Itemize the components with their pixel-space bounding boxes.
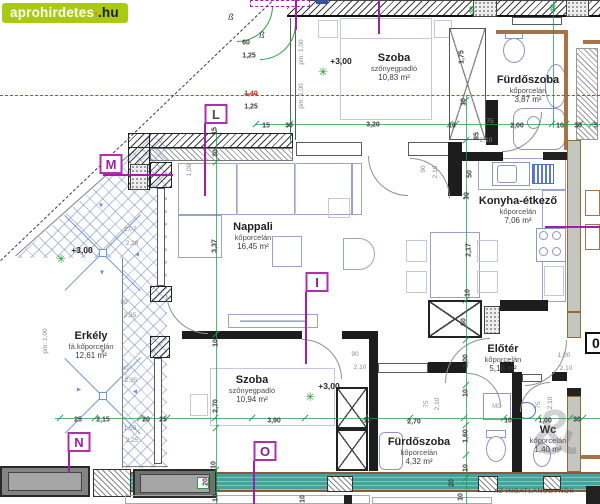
room-floor: szőnyegpadló xyxy=(229,387,275,396)
stub xyxy=(316,0,328,4)
fixture xyxy=(503,38,525,63)
wall-dark xyxy=(512,372,522,472)
furniture xyxy=(352,163,362,215)
room-label: Előtérkőporcelán5,18 m² xyxy=(485,343,522,373)
section-line xyxy=(545,226,600,228)
dim-label: 15 xyxy=(212,127,219,135)
fixture xyxy=(539,231,548,240)
room-area: 10,83 m² xyxy=(371,73,417,82)
room-area: 16,45 m² xyxy=(233,242,273,251)
dim-label: 30 xyxy=(551,4,558,12)
dim-label: 10 xyxy=(213,339,220,347)
furniture-faint xyxy=(585,224,600,250)
site-logo-tld: .hu xyxy=(98,5,119,20)
room-floor: kőporcelán xyxy=(479,208,557,217)
dim-label: 60 xyxy=(461,318,468,326)
dim-label: 10 xyxy=(464,192,471,200)
dim-label: 1,00 xyxy=(463,354,470,368)
room-label: Erkélyfá.kőporcelán12,61 m² xyxy=(68,330,113,360)
level-marker-label: +3,00 xyxy=(330,56,352,66)
dim-label: 30 xyxy=(470,6,477,14)
dim-label: 10 xyxy=(211,461,218,469)
furniture-faint xyxy=(585,190,600,216)
wall-dark xyxy=(552,372,567,381)
slope-arrow-icon: ◄ xyxy=(132,389,139,396)
dim-label: 10 xyxy=(463,464,470,472)
room-area: 12,61 m² xyxy=(68,351,113,360)
dim-label: 30 xyxy=(285,123,293,130)
beta-label: ß xyxy=(228,12,234,22)
hatch-light xyxy=(150,148,293,161)
wall-white xyxy=(154,358,162,464)
slope-arrow-icon: ► xyxy=(76,387,83,394)
furniture xyxy=(430,232,480,298)
section-line xyxy=(68,452,70,473)
dim-label: 2,17 xyxy=(466,243,473,257)
door-number-tag: 0 xyxy=(585,332,600,354)
furniture-faint xyxy=(125,495,370,504)
fixture xyxy=(486,436,506,462)
dim-label: 25 xyxy=(74,417,82,424)
room-name: Szoba xyxy=(371,52,417,65)
dim-label: 20 xyxy=(449,479,456,487)
level-marker-star-icon: ✳ xyxy=(56,252,66,266)
section-line xyxy=(103,174,173,176)
legend-dash-box xyxy=(250,0,310,7)
door-arc xyxy=(302,339,342,379)
room-area: 7,06 m² xyxy=(479,216,557,225)
room-area: 3,87 m² xyxy=(497,95,559,104)
wall-gray xyxy=(567,312,581,338)
furniture-faint xyxy=(328,198,350,218)
fixture xyxy=(539,247,548,256)
wall-white xyxy=(408,142,450,156)
dim-label: pm: 1,00 xyxy=(43,328,50,353)
level-marker-star-icon: ✳ xyxy=(305,390,315,404)
section-marker-o: O xyxy=(254,441,277,461)
furniture-faint xyxy=(406,271,427,293)
room-name: Nappali xyxy=(233,221,273,234)
stipple-block xyxy=(130,164,148,190)
dim-label: 10 xyxy=(300,495,307,503)
dim-label: 10 xyxy=(465,289,472,297)
dim-line-green xyxy=(255,124,600,125)
dim-label: 10 xyxy=(504,418,512,425)
watermark-symbol: & xyxy=(532,395,578,469)
dim-label: 80 xyxy=(121,366,128,373)
fixture xyxy=(497,165,517,183)
furniture-faint xyxy=(294,163,296,215)
dim-label: 3,20 xyxy=(366,122,380,129)
dim-label: 2,28 xyxy=(126,241,139,248)
furniture-faint xyxy=(240,320,306,322)
dim-label: 1,00 xyxy=(558,353,571,360)
wall-dark xyxy=(448,152,503,161)
furniture-faint xyxy=(372,497,492,504)
closet xyxy=(428,300,482,338)
room-floor: szőnyegpadló xyxy=(371,65,417,74)
door-arc xyxy=(410,158,450,198)
fixture xyxy=(552,231,561,240)
room-label: Nappalikőporcelán16,45 m² xyxy=(233,221,273,251)
dim-label: 10 xyxy=(461,98,468,106)
section-marker-m: M xyxy=(100,154,123,174)
dim-label: 1,50 xyxy=(124,426,137,433)
beta-label: ß xyxy=(259,30,265,40)
section-line xyxy=(378,0,380,34)
dim-label: 60 xyxy=(242,40,250,47)
wall-dark xyxy=(448,142,462,196)
dim-label: 20 xyxy=(142,417,150,424)
dim-label: 2,10 xyxy=(435,398,442,411)
room-area: 4,32 m² xyxy=(388,457,450,466)
dim-label: pm: 1,00 xyxy=(299,39,306,64)
furniture-faint xyxy=(544,266,564,296)
dim-label: 10 xyxy=(363,418,371,425)
dim-label: 2,10 xyxy=(354,365,367,372)
room-label: Fürdőszobakőporcelán3,87 m² xyxy=(497,74,559,104)
dim-label: 2,10 xyxy=(480,138,493,145)
edge-line xyxy=(122,258,123,468)
dim-label: 50 xyxy=(467,170,474,178)
dim-label: 1,60 xyxy=(463,429,470,443)
stub xyxy=(543,152,567,160)
dim-label: 90 xyxy=(351,352,358,359)
dim-label: 5 xyxy=(594,123,598,130)
room-label: Konyha-étkezőkőporcelán7,06 m² xyxy=(479,195,557,225)
dim-label: 1,75 xyxy=(459,50,466,64)
dim-label: 20 xyxy=(203,478,210,486)
door-arc xyxy=(467,373,501,407)
wall-white xyxy=(512,17,562,25)
dim-label: 2,10 xyxy=(433,166,440,179)
dim-label: 10 xyxy=(448,123,456,130)
site-logo-name: aprohirdetes xyxy=(10,5,94,20)
furniture-faint xyxy=(236,163,238,215)
dim-label: 15 xyxy=(262,123,270,130)
sink-drainer xyxy=(532,164,554,184)
planter-inner xyxy=(8,472,82,491)
band-insert xyxy=(93,469,131,497)
room-floor: kőporcelán xyxy=(485,356,522,365)
section-line xyxy=(305,292,307,364)
dim-label: 3,37 xyxy=(212,239,219,253)
wall-dark xyxy=(500,300,548,311)
wall-dark xyxy=(369,331,378,471)
dim-line-green xyxy=(216,130,217,504)
fixture xyxy=(552,247,561,256)
dim-label: 10 xyxy=(463,389,470,397)
room-label: Szobaszőnyegpadló10,83 m² xyxy=(371,52,417,82)
stipple-block xyxy=(566,0,589,17)
dim-label: 3,90 xyxy=(267,418,281,425)
dim-label: 75 xyxy=(486,119,493,126)
watermark-agency: AZ INGATLANÜGYNÖK xyxy=(494,488,575,495)
dim-label: 1,00 xyxy=(187,164,194,177)
dim-label: 80 xyxy=(120,300,127,307)
armchair xyxy=(343,238,375,270)
dim-label: 2,15 xyxy=(96,417,110,424)
fold-node xyxy=(99,392,107,400)
stub xyxy=(344,495,352,504)
dim-label: 90 xyxy=(421,165,428,172)
room-name: Szoba xyxy=(229,374,275,387)
brown-bar xyxy=(496,30,568,34)
dim-label: 2,35 xyxy=(125,378,138,385)
dim-label: 2,07 xyxy=(124,227,137,234)
level-marker-label: +3,00 xyxy=(318,381,340,391)
stipple-block xyxy=(484,306,500,334)
furniture xyxy=(272,236,302,267)
room-name: Előtér xyxy=(485,343,522,356)
floor-plan-canvas: ▼ ◄ ▼ ► ◄ ▼ xyxy=(0,0,600,504)
room-floor: kőporcelán xyxy=(497,87,559,96)
stub xyxy=(586,486,600,504)
hatch-wall xyxy=(128,133,293,148)
room-name: Konyha-étkező xyxy=(479,195,557,208)
slope-arrow-icon: ▼ xyxy=(98,203,105,210)
furniture-faint xyxy=(190,394,208,416)
dim-label: 25 xyxy=(159,417,167,424)
section-line xyxy=(295,0,297,30)
slope-arrow-icon: ▼ xyxy=(99,270,106,277)
wardrobe xyxy=(336,429,368,471)
door-arc xyxy=(368,156,408,196)
slope-arrow-icon: ◄ xyxy=(134,252,141,259)
dim-label: 30 xyxy=(574,123,582,130)
site-logo: aprohirdetes▪.hu xyxy=(2,3,128,23)
dim-label: 1,25 xyxy=(244,104,258,111)
section-marker-n: N xyxy=(68,432,91,452)
level-marker-label: +3,00 xyxy=(71,245,93,255)
dim-line-green xyxy=(553,0,554,128)
dim-label: 10 xyxy=(556,123,564,130)
furniture-faint xyxy=(318,20,338,38)
furniture-faint xyxy=(406,240,427,262)
furniture-faint xyxy=(340,38,432,39)
room-area: 10,94 m² xyxy=(229,395,275,404)
dim-label: 1,25 xyxy=(242,53,256,60)
mg-label: MG xyxy=(492,404,502,410)
dim-label: 10 xyxy=(213,494,220,502)
room-floor: kőporcelán xyxy=(233,234,273,243)
furniture-faint xyxy=(477,240,498,262)
dim-label: 2,70 xyxy=(407,419,421,426)
wall-white xyxy=(296,142,362,156)
room-name: Fürdőszoba xyxy=(497,74,559,87)
dim-label: 1,40 xyxy=(244,91,258,98)
brown-bar xyxy=(583,40,600,44)
room-area: 5,18 m² xyxy=(485,364,522,373)
dim-label: 75 xyxy=(424,400,431,407)
section-line xyxy=(204,123,206,196)
dim-label: 30 xyxy=(213,149,220,157)
dim-label: 2,10 xyxy=(560,366,573,373)
wall-white xyxy=(378,363,428,373)
section-line xyxy=(253,461,255,504)
brown-bar xyxy=(581,455,600,459)
brown-bar xyxy=(564,32,568,150)
stipple-block xyxy=(473,0,497,17)
door-arc xyxy=(166,292,208,334)
dim-label: 2,35 xyxy=(124,313,137,320)
room-name: Fürdőszoba xyxy=(388,436,450,449)
room-floor: fá.kőporcelán xyxy=(68,343,113,352)
room-name: Erkély xyxy=(68,330,113,343)
section-marker-i: I xyxy=(306,272,329,292)
section-marker-l: L xyxy=(205,104,228,124)
room-label: Szobaszőnyegpadló10,94 m² xyxy=(229,374,275,404)
edge-line xyxy=(122,466,168,467)
level-marker-star-icon: ✳ xyxy=(318,65,328,79)
furniture-faint xyxy=(477,271,498,293)
band-insert xyxy=(327,476,353,492)
dim-label: 2,70 xyxy=(213,399,220,413)
hatch-wall xyxy=(150,336,170,358)
wall-white xyxy=(157,188,165,286)
dim-label: 2,25 xyxy=(126,438,139,445)
dim-label: pm: 1,00 xyxy=(299,83,306,108)
fold-node xyxy=(99,249,107,257)
dim-label: 85 xyxy=(474,132,481,140)
dim-label: 10 xyxy=(458,493,465,501)
room-floor: kőporcelán xyxy=(388,449,450,458)
dim-label: 2,00 xyxy=(510,123,524,130)
room-label: Fürdőszobakőporcelán4,32 m² xyxy=(388,436,450,466)
